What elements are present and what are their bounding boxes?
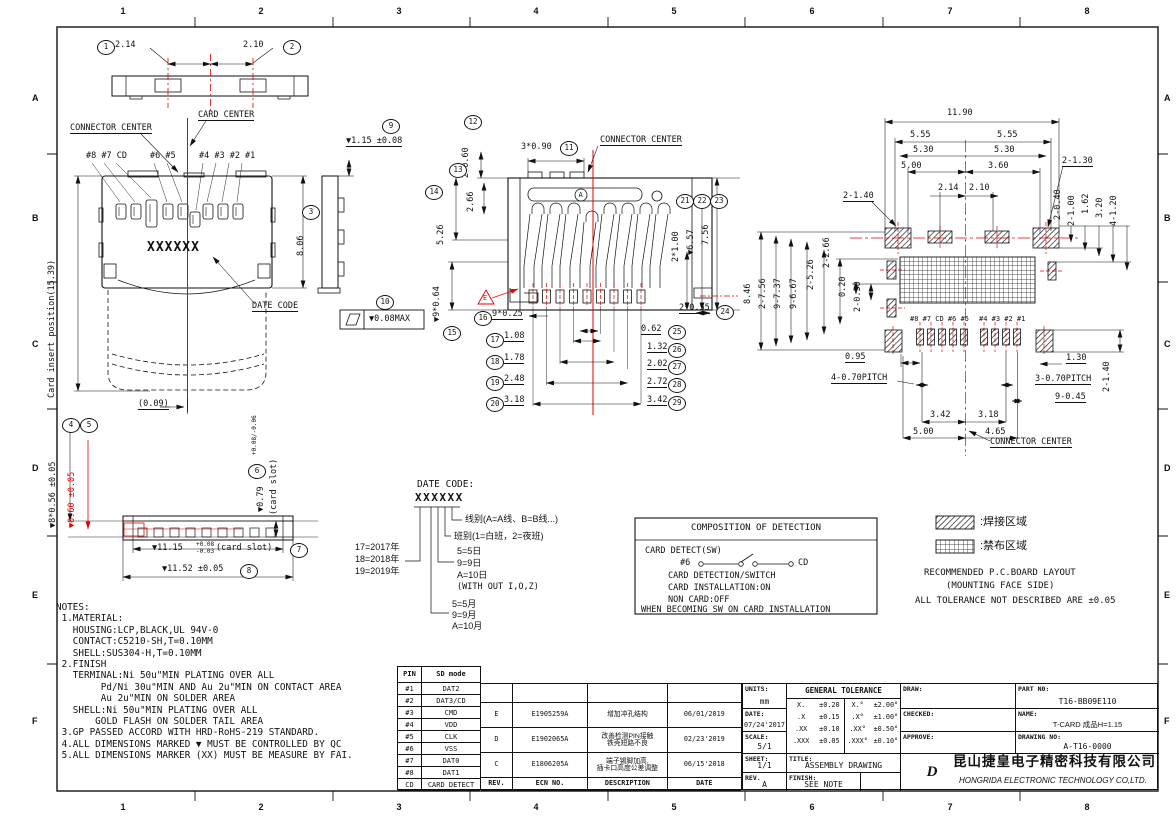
dim-3x0-90: 3*0.90 xyxy=(521,142,552,152)
zone-col-4b: 4 xyxy=(526,802,546,812)
balloon-24: 24 xyxy=(716,305,734,320)
description-cell: 端子锡脚加高, 插卡口高度公差调整 xyxy=(588,753,667,778)
pin-labels-left: #8 #7 CD xyxy=(86,151,127,161)
tol-cell: .XX° xyxy=(844,723,872,735)
tol-cell: .XXX xyxy=(787,735,815,747)
zone-row-a2: A xyxy=(1164,93,1171,103)
pcb-dim-2-1-30: 2-1.30 xyxy=(1062,156,1093,167)
desc-header-cell: DESCRIPTION xyxy=(588,778,667,791)
datecode-year-2: 18=2018年 xyxy=(355,554,399,564)
dim-9x0-25: 9*0.25 xyxy=(492,309,523,320)
balloon-21: 21 xyxy=(676,194,694,209)
dim-2-14: 2.14 xyxy=(115,40,135,50)
dim-11-15: ▼11.15 xyxy=(152,543,183,553)
balloon-19: 19 xyxy=(486,376,504,391)
pcb-dim-3-18: 3.18 xyxy=(978,410,998,420)
detection-line1: CARD DETECT(SW) xyxy=(645,546,722,556)
datecode-title: DATE CODE: xyxy=(417,480,474,490)
rev-value: A xyxy=(743,781,786,789)
company-cell: D 昆山捷皇电子精密科技有限公司 HONGRIDA ELECTRONIC TEC… xyxy=(901,754,1159,791)
rev-header-cell: REV. xyxy=(481,778,513,791)
side-view xyxy=(318,176,344,293)
pin-table: PIN SD mode #1 DAT2 #2 DAT3/CD #3 CMD #4… xyxy=(397,666,481,790)
note-line: 5.ALL DIMENSIONS MARKER (XX) MUST BE MEA… xyxy=(56,750,353,761)
date-label: DATE: xyxy=(745,710,765,718)
dim-11-15-tol-bot: -0.03 xyxy=(196,548,214,555)
zone-col-6b: 6 xyxy=(802,802,822,812)
date-cell: 06/15'2018 xyxy=(668,753,741,778)
detection-line3: CARD INSTALLATION:ON xyxy=(668,583,770,593)
title-block: UNITS: mm DATE: 07/24'2017 SCALE: 5/1 SH… xyxy=(742,683,1158,790)
pcb-dim-2-1-00: 2-1.00 xyxy=(1067,195,1077,226)
units-label: UNITS: xyxy=(745,685,768,693)
note-line: SHELL:SUS304-H,T=0.10MM xyxy=(56,648,353,659)
finish-value: SEE NOTE xyxy=(787,781,860,789)
zone-col-4: 4 xyxy=(526,6,546,16)
pin-table-rows: #1 DAT2 #2 DAT3/CD #3 CMD #4 VDD #5 CLK xyxy=(398,683,480,791)
units-value: mm xyxy=(743,698,786,706)
dim-3-42: 3.42 xyxy=(647,395,667,406)
note-line: GOLD FLASH ON SOLDER TAIL AREA xyxy=(56,716,353,727)
zone-col-8: 8 xyxy=(1077,6,1097,16)
tol-cell: ±0.10 xyxy=(815,723,843,735)
balloon-2: 2 xyxy=(283,40,301,55)
zone-col-1b: 1 xyxy=(113,802,133,812)
note-line: Pd/Ni 30u"MIN AND Au 2u"MIN ON CONTACT A… xyxy=(56,682,353,693)
sdmode-col-header: SD mode xyxy=(422,667,480,683)
tol-cell: ±0.10° xyxy=(872,735,900,747)
legend-swatches xyxy=(936,516,974,553)
draw-label: DRAW: xyxy=(903,685,923,693)
revision-row: C E1806205A 端子锡脚加高, 插卡口高度公差调整 06/15'2018 xyxy=(481,753,741,778)
pin-cell: #2 xyxy=(398,695,422,707)
name-value: T-CARD 成品H=1.15 xyxy=(1016,721,1159,729)
zone-row-d2: D xyxy=(1164,463,1171,473)
balloon-9: 9 xyxy=(382,119,400,134)
pin-cell: #3 xyxy=(398,707,422,719)
datecode-day-note: (WITH OUT I,O,Z) xyxy=(457,582,539,592)
signal-cell: CMD xyxy=(422,707,480,719)
date-code-mark: XXXXXX xyxy=(147,243,200,253)
drawing-no-label: DRAWING NO: xyxy=(1018,733,1061,741)
dim-2-66: 2.66 xyxy=(466,192,476,212)
datecode-shift: 班别(1=白班，2=夜班) xyxy=(454,531,544,541)
datecode-month-3: A=10月 xyxy=(452,621,482,631)
date-cell: 02/23'2019 xyxy=(668,728,741,753)
note-line: 3.GP PASSED ACCORD WITH HRD-RoHS-219 STA… xyxy=(56,727,353,738)
balloon-5: 5 xyxy=(80,418,98,433)
pin-table-row: #7 DAT0 xyxy=(398,755,480,767)
zone-col-5: 5 xyxy=(664,6,684,16)
pcb-pad-labels-left: #8 #7 CD #6 #5 xyxy=(910,315,969,323)
draw-cell: DRAW: xyxy=(901,684,1016,709)
tol-cell: ±0.15 xyxy=(815,711,843,723)
dim-1-78: 1.78 xyxy=(504,353,524,364)
connector-center-label-mid: CONNECTOR CENTER xyxy=(600,135,682,146)
pcb-note-3: ALL TOLERANCE NOT DESCRIBED ARE ±0.05 xyxy=(915,596,1115,606)
tol-cell: .X° xyxy=(844,711,872,723)
marker-a: A xyxy=(579,191,583,199)
pcb-dim-2-14: 2.14 xyxy=(938,183,958,193)
dim-1-15: ▼1.15 ±0.08 xyxy=(346,136,402,147)
date-value: 07/24'2017 xyxy=(743,721,786,729)
pcb-dim-4-1-20: 4-1.20 xyxy=(1109,195,1119,226)
balloon-29: 29 xyxy=(668,396,686,411)
pcb-dim-9-0-45: 9-0.45 xyxy=(1055,392,1086,403)
ecn-header-cell: ECN NO. xyxy=(513,778,588,791)
datecode-day-2: 9=9日 xyxy=(457,558,481,568)
rev-header-row: REV. ECN NO. DESCRIPTION DATE xyxy=(481,778,741,791)
balloon-14: 14 xyxy=(425,185,443,200)
pin-table-row: #8 DAT1 xyxy=(398,767,480,779)
balloon-23: 23 xyxy=(710,194,728,209)
drawing-no-value: A-T16-0000 xyxy=(1016,743,1159,751)
pcb-dim-3-60: 3.60 xyxy=(988,161,1008,171)
balloon-17: 17 xyxy=(486,333,504,348)
pin-table-row: #2 DAT3/CD xyxy=(398,695,480,707)
date-cell: DATE: 07/24'2017 xyxy=(743,709,787,732)
rev-cell xyxy=(513,684,588,703)
signal-cell: DAT1 xyxy=(422,767,480,779)
marker-e: E xyxy=(483,294,487,302)
name-label: NAME: xyxy=(1018,710,1038,718)
dim-11-15-tol-top: +0.08 xyxy=(196,541,214,548)
datecode-month-2: 9=9月 xyxy=(452,610,476,620)
pcb-dim-0-20: 0.20 xyxy=(838,277,848,297)
balloon-28: 28 xyxy=(668,378,686,393)
zone-col-3b: 3 xyxy=(389,802,409,812)
dim-0-60: ▼0.60 ±0.05 xyxy=(67,472,77,528)
dim-2-48: 2.48 xyxy=(504,374,524,385)
zone-row-f2: F xyxy=(1164,716,1170,726)
rev-rows: E E1905259A 增加冲孔结构 06/01/2019 D E1902065… xyxy=(481,703,741,778)
part-no-cell: PART N0: T16-BB09E110 xyxy=(1016,684,1159,709)
dim-9x0-64: ▼9*0.64 xyxy=(432,286,442,322)
balloon-13: 13 xyxy=(449,163,467,178)
balloon-3: 3 xyxy=(302,205,320,220)
datecode-year-1: 17=2017年 xyxy=(355,542,399,552)
note-line: NOTES: xyxy=(56,602,353,613)
tol-cell: ±1.00° xyxy=(872,711,900,723)
finish-cell: FINISH: SEE NOTE xyxy=(787,773,861,791)
part-no-value: T16-BB09E110 xyxy=(1016,698,1159,706)
balloon-4: 4 xyxy=(62,418,80,433)
pcb-dim-3-20: 3.20 xyxy=(1095,198,1105,218)
pcb-dim-2-5-26: 2-5.26 xyxy=(806,259,816,290)
pcb-dim-5-55b: 5.55 xyxy=(997,130,1017,140)
dim-0-79: ▼0.79 xyxy=(256,486,266,512)
title-cell: TITLE: ASSEMBLY DRAWING xyxy=(787,754,901,773)
signal-cell: DAT2 xyxy=(422,683,480,695)
note-line: HOUSING:LCP,BLACK,UL 94V-0 xyxy=(56,625,353,636)
dim-3-18: 3.18 xyxy=(504,395,524,406)
zone-col-3: 3 xyxy=(389,6,409,16)
pcb-dim-3-42: 3.42 xyxy=(930,410,950,420)
pcb-dim-2-0-40: 2-0.40 xyxy=(1053,189,1063,220)
tol-cell: .X xyxy=(787,711,815,723)
pcb-connector-center: CONNECTOR CENTER xyxy=(990,437,1072,448)
balloon-11: 11 xyxy=(560,141,578,156)
projection-cell xyxy=(861,773,901,791)
dim-2-72: 2.72 xyxy=(647,377,667,388)
ecn-cell: E1806205A xyxy=(513,753,588,778)
signal-cell: DAT3/CD xyxy=(422,695,480,707)
detection-sw-right: CD xyxy=(798,558,808,568)
dim-2-02: 2.02 xyxy=(647,359,667,370)
notes-block: NOTES: 1.MATERIAL: HOUSING:LCP,BLACK,UL … xyxy=(56,602,353,762)
scale-label: SCALE: xyxy=(745,733,768,741)
zone-row-e2: E xyxy=(1164,590,1170,600)
pcb-dim-11-90: 11.90 xyxy=(947,108,973,118)
datecode-month-1: 5=5月 xyxy=(452,599,476,609)
scale-value: 5/1 xyxy=(743,743,786,751)
dim-2x0-55: 2*0.55 xyxy=(679,303,710,314)
pin-cell: #8 xyxy=(398,767,422,779)
pcb-dim-5-30b: 5.30 xyxy=(994,145,1014,155)
balloon-16: 16 xyxy=(474,311,492,326)
tol-cell: ±0.50° xyxy=(872,723,900,735)
tolerance-cell: GENERAL TOLERANCE X. ±0.20 X.° ±2.00° .X… xyxy=(787,684,901,754)
pcb-dim-2-1-40b: 2-1.40 xyxy=(1102,361,1112,392)
rev-cell: REV. A xyxy=(743,773,787,791)
signal-cell: DAT0 xyxy=(422,755,480,767)
name-cell: NAME: T-CARD 成品H=1.15 xyxy=(1016,709,1159,732)
balloon-12: 12 xyxy=(464,115,482,130)
zone-row-c2: C xyxy=(1164,339,1171,349)
datecode-day-1: 5=5日 xyxy=(457,546,481,556)
dim-8-06: 8.06 xyxy=(296,236,306,256)
pin-cell: #1 xyxy=(398,683,422,695)
balloon-18: 18 xyxy=(486,355,504,370)
detection-line5: WHEN BECOMING SW ON CARD INSTALLATION xyxy=(641,605,830,615)
ecn-cell: E1902065A xyxy=(513,728,588,753)
rev-letter-cell: D xyxy=(481,728,513,753)
pcb-dim-2-7-56: 2-7.56 xyxy=(758,278,768,309)
pcb-dim-1-62: 1.62 xyxy=(1081,194,1091,214)
note-line: 4.ALL DIMENSIONS MARKED ▼ MUST BE CONTRO… xyxy=(56,739,353,750)
dim-0-62: 0.62 xyxy=(641,324,661,335)
pcb-dim-5-00: 5.00 xyxy=(901,161,921,171)
card-center-label: CARD CENTER xyxy=(198,110,254,121)
pcb-dim-1-30: 1.30 xyxy=(1066,353,1086,364)
dim-11-15-suffix: (card slot) xyxy=(216,543,272,553)
pin-labels-mid: #6 #5 xyxy=(150,151,176,161)
tolerance-divider xyxy=(844,698,845,753)
revision-row: D E1902065A 改善检测PIN接触 铁壳短路不良 02/23'2019 xyxy=(481,728,741,753)
zone-col-2b: 2 xyxy=(251,802,271,812)
pcb-dim-5-30a: 5.30 xyxy=(913,145,933,155)
pin-col-header: PIN xyxy=(398,667,422,683)
balloon-20: 20 xyxy=(486,397,504,412)
datecode-day-3: A=10日 xyxy=(457,570,487,580)
pin-table-row: #1 DAT2 xyxy=(398,683,480,695)
pcb-dim-4-65: 4.65 xyxy=(985,427,1005,437)
pcb-dim-2-0-30: 2-0.30 xyxy=(853,281,863,312)
pin-cell: #5 xyxy=(398,731,422,743)
rev-cell xyxy=(481,684,513,703)
keepout-area xyxy=(900,257,1035,303)
pcb-dim-9-6-67: 9-6.67 xyxy=(789,278,799,309)
middle-view xyxy=(508,172,712,310)
zone-row-b2: B xyxy=(1164,213,1171,223)
pcb-note-1: RECOMMENDED P.C.BOARD LAYOUT xyxy=(924,568,1076,578)
pin-cell: #7 xyxy=(398,755,422,767)
units-cell: UNITS: mm xyxy=(743,684,787,709)
pcb-dim-5-00b: 5.00 xyxy=(913,427,933,437)
balloon-7: 7 xyxy=(290,543,308,558)
tol-cell: .XXX° xyxy=(844,735,872,747)
tol-cell: X.° xyxy=(844,699,872,711)
title-value: ASSEMBLY DRAWING xyxy=(787,762,900,770)
pin-table-row: CD CARD DETECT xyxy=(398,779,480,791)
dim-6-57: ▼6.57 xyxy=(686,229,696,255)
date-code-tree xyxy=(405,507,462,613)
pcb-dim-2-2-66: 2-2.66 xyxy=(822,237,832,268)
balloon-10: 10 xyxy=(376,295,394,310)
checked-label: CHECKED: xyxy=(903,710,934,718)
legend-solder-label: :焊接区域 xyxy=(980,517,1027,527)
dim-7-56: 7.56 xyxy=(701,225,711,245)
balloon-15: 15 xyxy=(443,326,461,341)
balloon-8: 8 xyxy=(240,564,258,579)
pcb-dim-2-10: 2.10 xyxy=(969,183,989,193)
pin-labels-right: #4 #3 #2 #1 xyxy=(199,151,255,161)
datecode-line-type: 线别(A=A线、B=B线...) xyxy=(465,514,558,524)
detection-line2: CARD DETECTION/SWITCH xyxy=(668,571,775,581)
dim-11-52: ▼11.52 ±0.05 xyxy=(162,564,223,574)
date-code-pointer-label: DATE CODE xyxy=(252,301,298,312)
signal-cell: VSS xyxy=(422,743,480,755)
note-line: SHELL:Ni 50u"MIN PLATING OVER ALL xyxy=(56,705,353,716)
pcb-dim-8-46: 8.46 xyxy=(743,284,753,304)
flatness-value: ▼0.08MAX xyxy=(369,314,410,324)
balloon-26: 26 xyxy=(668,343,686,358)
signal-cell: VDD xyxy=(422,719,480,731)
zone-row-a: A xyxy=(32,93,39,103)
dim-2-10: 2.10 xyxy=(243,40,263,50)
pcb-note-2: (MOUNTING FACE SIDE) xyxy=(946,581,1054,591)
detection-title: COMPOSITION OF DETECTION xyxy=(635,523,877,533)
zone-col-2: 2 xyxy=(251,6,271,16)
legend-keepout-label: :禁布区域 xyxy=(980,541,1027,551)
zone-col-1: 1 xyxy=(113,6,133,16)
datecode-year-3: 19=2019年 xyxy=(355,566,399,576)
note-line: 1.MATERIAL: xyxy=(56,613,353,624)
zone-col-5b: 5 xyxy=(664,802,684,812)
zone-row-e: E xyxy=(32,590,38,600)
zone-row-d: D xyxy=(32,463,39,473)
tol-cell: ±2.00° xyxy=(872,699,900,711)
date-cell: 06/01/2019 xyxy=(668,703,741,728)
description-cell: 增加冲孔结构 xyxy=(588,703,667,728)
zone-col-6: 6 xyxy=(802,6,822,16)
pcb-pad-labels-right: #4 #3 #2 #1 xyxy=(979,315,1025,323)
sheet-value: 1/1 xyxy=(743,762,786,770)
description-cell: 改善检测PIN接触 铁壳短路不良 xyxy=(588,728,667,753)
rev-cell xyxy=(668,684,741,703)
pcb-dim-2-1-40: 2-1.40 xyxy=(843,191,874,202)
dim-2x1-00: 2*1.00 xyxy=(671,231,681,262)
zone-col-7: 7 xyxy=(940,6,960,16)
card-insert-label: Card insert position(15.39) xyxy=(47,260,57,398)
revision-row: E E1905259A 增加冲孔结构 06/01/2019 xyxy=(481,703,741,728)
rev-cell xyxy=(588,684,667,703)
tol-cell: X. xyxy=(787,699,815,711)
pin-table-row: #3 CMD xyxy=(398,707,480,719)
note-line: Au 2u"MIN ON SOLDER AREA xyxy=(56,693,353,704)
company-name-en: HONGRIDA ELECTRONIC TECHNOLOGY CO,LTD. xyxy=(959,776,1147,785)
balloon-22: 22 xyxy=(693,194,711,209)
tol-cell: .XX xyxy=(787,723,815,735)
note-line: TERMINAL:Ni 50u"MIN PLATING OVER ALL xyxy=(56,670,353,681)
balloon-6: 6 xyxy=(248,464,266,479)
detection-sw-left: #6 xyxy=(680,558,690,568)
pin-table-row: #6 VSS xyxy=(398,743,480,755)
bottom-profile-view xyxy=(68,516,318,540)
drawing-no-cell: DRAWING NO: A-T16-0000 xyxy=(1016,732,1159,754)
ecn-cell: E1905259A xyxy=(513,703,588,728)
pcb-dim-5-55a: 5.55 xyxy=(910,130,930,140)
rev-letter-cell: C xyxy=(481,753,513,778)
top-profile-view xyxy=(112,76,308,99)
sheet-cell: SHEET: 1/1 xyxy=(743,754,787,773)
pin-table-header: PIN SD mode xyxy=(398,667,480,683)
tol-cell: ±0.20 xyxy=(815,699,843,711)
datecode-code: XXXXXX xyxy=(415,493,464,503)
date-header-cell: DATE xyxy=(668,778,741,791)
zone-row-f: F xyxy=(32,716,38,726)
tol-cell: ±0.05 xyxy=(815,735,843,747)
approve-label: APPROVE: xyxy=(903,733,934,741)
pcb-dim-9-7-37: 9-7.37 xyxy=(773,278,783,309)
detection-line4: NON CARD:OFF xyxy=(668,595,729,605)
note-line: CONTACT:C5210-SH,T=0.10MM xyxy=(56,636,353,647)
signal-cell: CARD DETECT xyxy=(422,779,480,791)
balloon-27: 27 xyxy=(668,360,686,375)
zone-row-c: C xyxy=(32,339,39,349)
pin-cell: #6 xyxy=(398,743,422,755)
rev-letter-cell: E xyxy=(481,703,513,728)
rev-empty-row xyxy=(481,684,741,703)
revision-table: E E1905259A 增加冲孔结构 06/01/2019 D E1902065… xyxy=(480,683,742,790)
dim-0-09: (0.09) xyxy=(138,399,169,410)
part-no-label: PART N0: xyxy=(1018,685,1049,693)
zone-col-8b: 8 xyxy=(1077,802,1097,812)
approve-cell: APPROVE: xyxy=(901,732,1016,754)
dim-1-08: 1.08 xyxy=(504,331,524,342)
dim-5-26: 5.26 xyxy=(436,225,446,245)
note-line: 2.FINISH xyxy=(56,659,353,670)
pcb-dim-3-0-70: 3-0.70PITCH xyxy=(1035,374,1091,385)
company-name-cn: 昆山捷皇电子精密科技有限公司 xyxy=(953,758,1156,766)
balloon-1: 1 xyxy=(97,40,115,55)
pin-cell: #4 xyxy=(398,719,422,731)
signal-cell: CLK xyxy=(422,731,480,743)
dim-0-79-tol: +0.08/-0.06 xyxy=(251,415,258,455)
scale-cell: SCALE: 5/1 xyxy=(743,732,787,754)
balloon-25: 25 xyxy=(668,325,686,340)
zone-col-7b: 7 xyxy=(940,802,960,812)
pin-table-row: #5 CLK xyxy=(398,731,480,743)
connector-center-label: CONNECTOR CENTER xyxy=(70,123,152,134)
drawing-sheet: 1 2 3 4 5 6 7 8 1 2 3 4 5 6 7 8 A B C D … xyxy=(0,0,1176,820)
dim-8x0-56: ▼8*0.56 ±0.05 xyxy=(48,461,58,528)
checked-cell: CHECKED: xyxy=(901,709,1016,732)
pin-table-row: #4 VDD xyxy=(398,719,480,731)
contact-fingers xyxy=(524,203,670,288)
dim-0-79-suffix: (card slot) xyxy=(269,459,279,515)
pcb-dim-4-0-70: 4-0.70PITCH xyxy=(831,373,887,384)
